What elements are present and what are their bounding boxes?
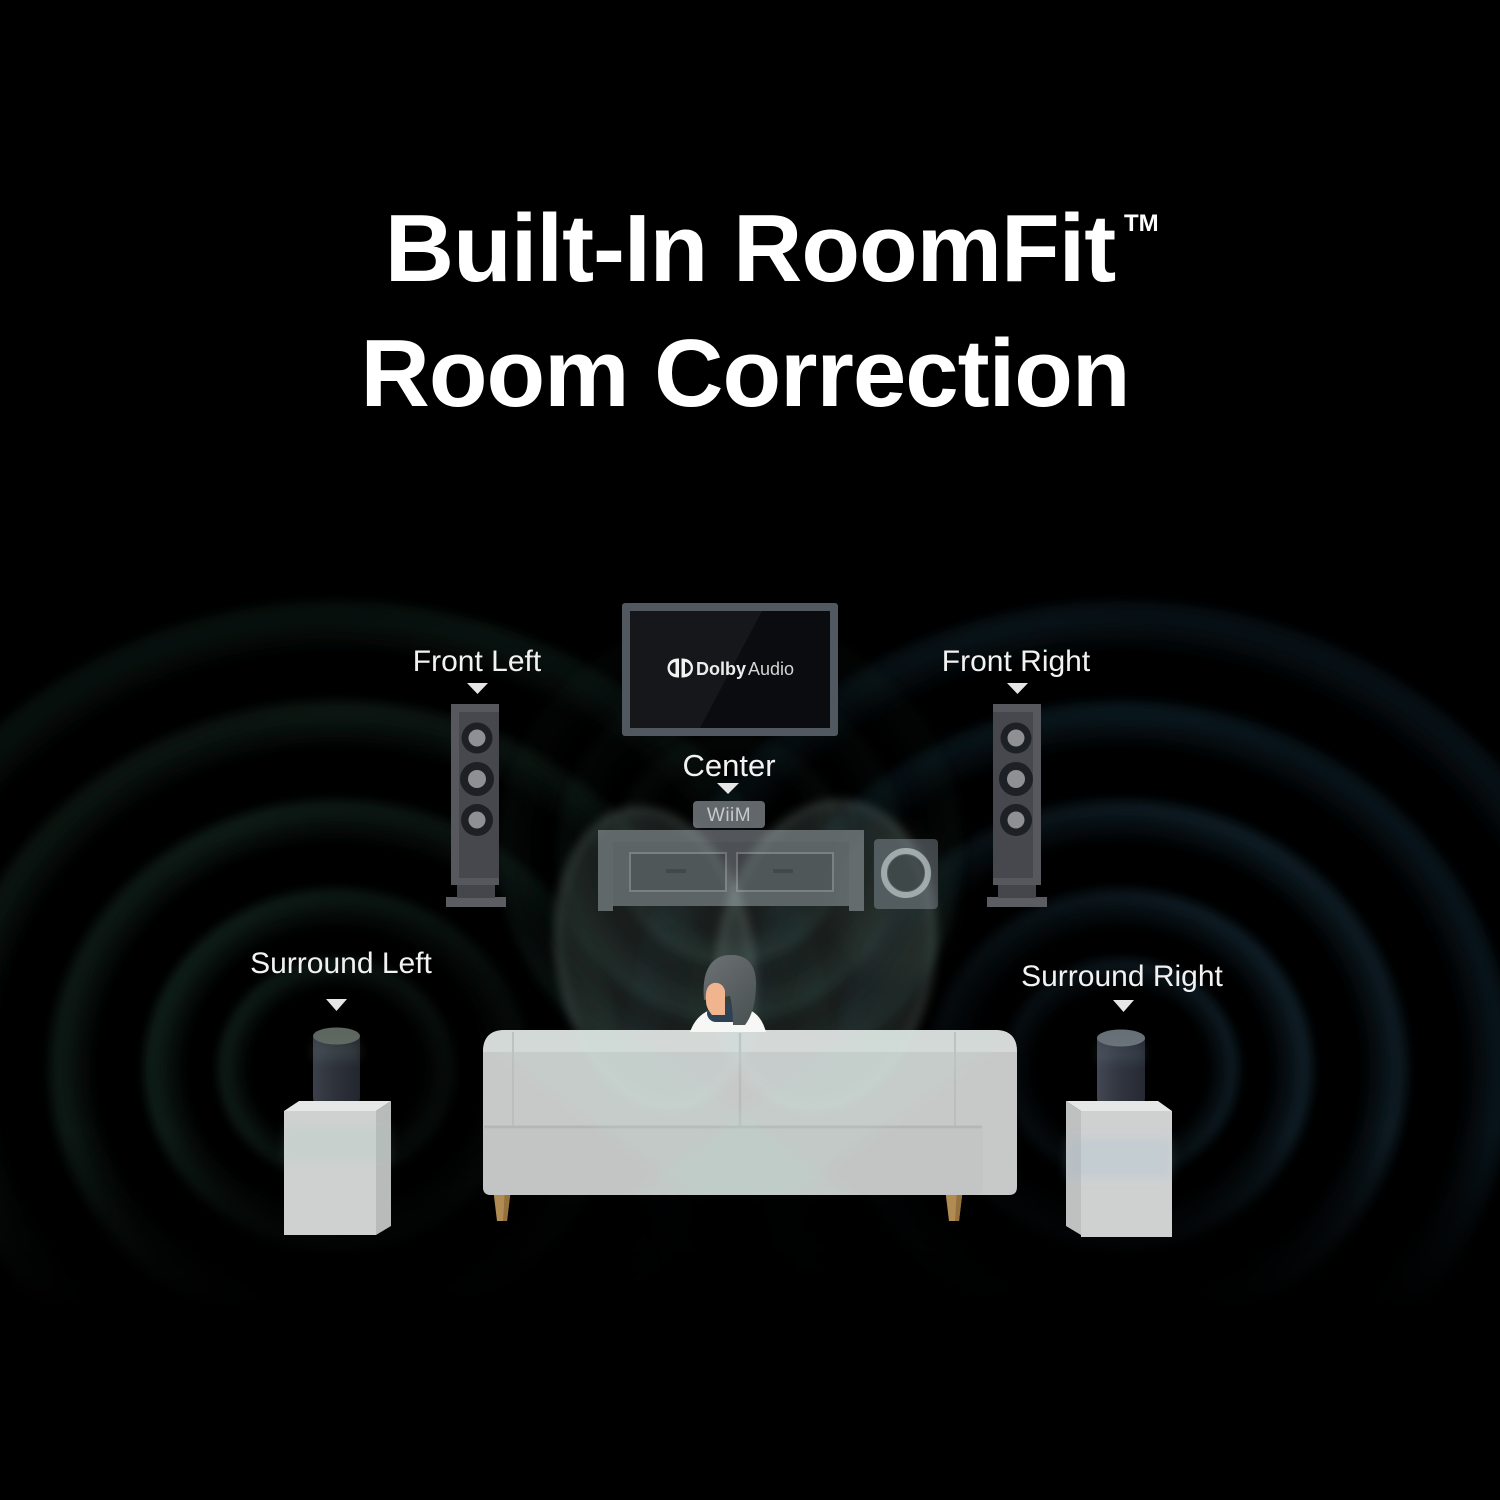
svg-text:WiiM: WiiM <box>707 805 751 826</box>
svg-text:Surround Left: Surround Left <box>250 947 432 980</box>
svg-text:Center: Center <box>682 748 775 783</box>
svg-text:Front Left: Front Left <box>413 645 542 678</box>
svg-text:TM: TM <box>1124 210 1159 237</box>
svg-text:Audio: Audio <box>748 659 794 679</box>
svg-text:Surround Right: Surround Right <box>1021 960 1223 993</box>
svg-text:Front Right: Front Right <box>942 645 1091 678</box>
svg-text:Built-In RoomFit: Built-In RoomFit <box>385 195 1116 302</box>
svg-text:Room Correction: Room Correction <box>360 320 1129 427</box>
svg-text:Dolby: Dolby <box>696 659 746 679</box>
